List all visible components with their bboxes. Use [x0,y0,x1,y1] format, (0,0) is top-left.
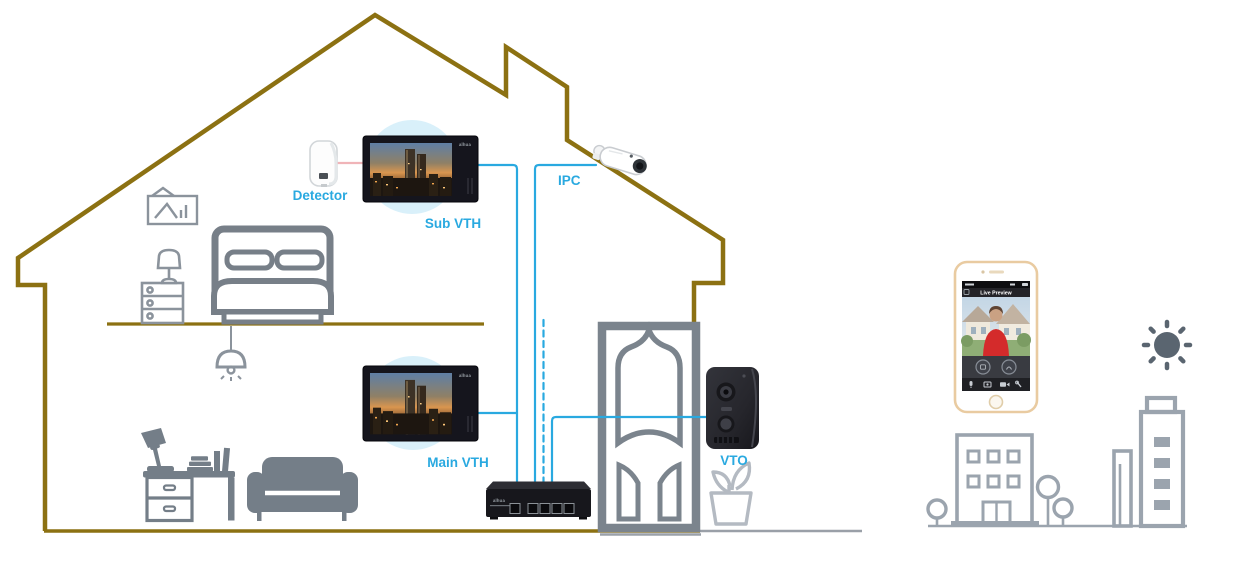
tree [928,500,946,526]
cable-vto-to-switch [552,417,708,487]
picture-frame [148,188,197,224]
sub-vth-label: Sub VTH [425,216,481,231]
door [602,326,696,528]
desk [141,428,235,521]
smartphone: Live Preview [955,262,1037,412]
vto-device [706,367,759,449]
roof [18,15,723,531]
mainvth-logo: alhua [459,373,471,378]
diagram-canvas: alhua alhua alhua [0,0,1240,566]
detector-device [310,141,337,187]
desk-lamp [141,428,174,472]
tree [1054,499,1072,526]
main-vth-label: Main VTH [427,455,489,470]
pendant-lamp [217,326,245,381]
cable-subvth-to-switch [476,165,517,487]
vto-label: VTO [720,453,748,468]
nightstand [142,283,183,323]
live-preview-screen: Live Preview [961,281,1031,391]
main-vth-device: alhua [363,366,478,441]
plant-pot [711,463,751,524]
subvth-logo: alhua [459,142,471,147]
house-outline [18,15,723,531]
sun-icon [1144,322,1190,368]
table-lamp [158,250,180,283]
tower-building [1114,398,1183,526]
books [187,448,230,472]
detector-label: Detector [293,188,349,203]
video-frame [961,297,1031,356]
sub-vth-device: alhua [363,136,478,202]
sofa [247,457,358,521]
phone-app-title: Live Preview [980,291,1012,297]
city [928,398,1187,526]
switch-logo: alhua [493,498,505,503]
ipc-label: IPC [558,173,581,188]
office-building [951,435,1039,524]
network-switch: alhua [486,482,591,520]
bed [214,229,331,322]
